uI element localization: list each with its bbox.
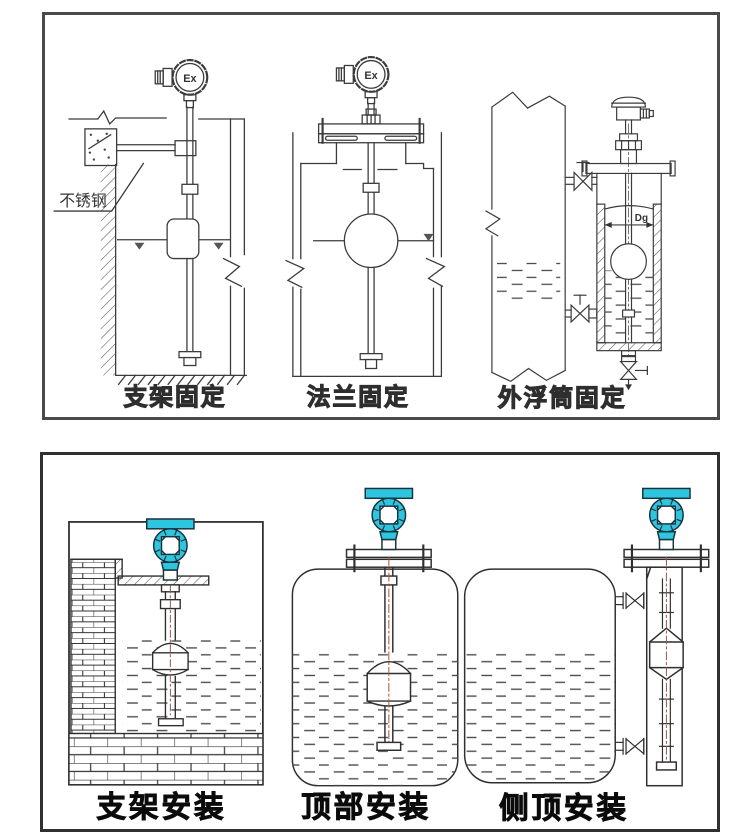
ceiling-line xyxy=(69,111,244,124)
side-top-installation-diagram xyxy=(465,488,709,785)
brick-floor xyxy=(69,734,263,785)
caption-side-top-installation: 侧顶安装 xyxy=(499,792,629,825)
stem-coupling xyxy=(363,183,379,192)
transmitter-head-icon xyxy=(155,60,207,108)
fixing-methods-drawing: Ex Ex Dg 不锈钢 支架固定 法兰固定 外浮筒固定 xyxy=(45,15,717,417)
page: { "panel_top": { "captions": { "bracket"… xyxy=(0,0,750,840)
stem-coupling xyxy=(182,184,198,194)
stainless-steel-label: 不锈钢 xyxy=(59,192,107,210)
caption-flange-fixing: 法兰固定 xyxy=(307,383,410,411)
water-area xyxy=(605,270,654,335)
float-ball-icon xyxy=(611,244,647,280)
stem-end-stub xyxy=(366,360,377,369)
stem-coupling xyxy=(623,310,635,317)
stem-end-stop xyxy=(159,719,184,726)
bracket-fixing-diagram xyxy=(54,60,246,384)
transmitter-head-icon xyxy=(365,488,412,549)
level-symbol-icon xyxy=(214,243,224,250)
stem-end-stop xyxy=(360,354,382,360)
installation-methods-drawing: 支架安装 顶部安装 侧顶安装 xyxy=(43,455,717,829)
level-symbol-icon xyxy=(134,243,144,250)
valve-icon xyxy=(565,295,597,322)
flange-fixing-diagram xyxy=(286,57,444,376)
ground-hatch xyxy=(117,375,247,384)
stem-end-stop xyxy=(657,762,677,770)
transmitter-head-icon xyxy=(612,97,654,163)
brick-wall xyxy=(71,559,115,733)
transmitter-head-icon xyxy=(147,519,194,580)
valve-icon xyxy=(615,593,646,609)
transmitter-head-icon xyxy=(336,57,388,104)
caption-top-installation: 顶部安装 xyxy=(301,790,431,824)
stem-end-stop xyxy=(179,352,201,358)
installation-methods-panel: 支架安装 顶部安装 侧顶安装 xyxy=(40,452,720,832)
stem-end-stop xyxy=(377,742,401,750)
tank-wall xyxy=(224,119,245,375)
water-area xyxy=(465,650,616,783)
wall-cap xyxy=(115,559,122,578)
caption-external-chamber-fixing: 外浮筒固定 xyxy=(498,384,627,412)
ex-marking: Ex xyxy=(183,73,196,85)
stem-end-stub xyxy=(184,358,196,366)
external-chamber-fixing-diagram xyxy=(486,92,675,390)
transmitter-head-icon xyxy=(643,488,690,549)
dg-label: Dg xyxy=(635,213,648,224)
fixing-methods-panel: Ex Ex Dg 不锈钢 支架固定 法兰固定 外浮筒固定 xyxy=(42,12,720,420)
float-ball-icon xyxy=(344,214,397,267)
bracket-arm xyxy=(117,141,196,156)
water-area xyxy=(497,259,560,303)
tank-outline xyxy=(486,92,565,381)
caption-bracket-installation: 支架安装 xyxy=(97,791,227,824)
caption-bracket-fixing: 支架固定 xyxy=(124,383,227,411)
bracket-installation-diagram xyxy=(69,519,263,785)
wall-mount-plate xyxy=(85,129,117,166)
ex-marking: Ex xyxy=(364,70,377,82)
float-icon xyxy=(167,219,199,259)
top-installation-diagram xyxy=(292,488,457,785)
water-area xyxy=(122,640,261,734)
valve-icon xyxy=(615,738,646,754)
valve-icon xyxy=(565,163,597,191)
